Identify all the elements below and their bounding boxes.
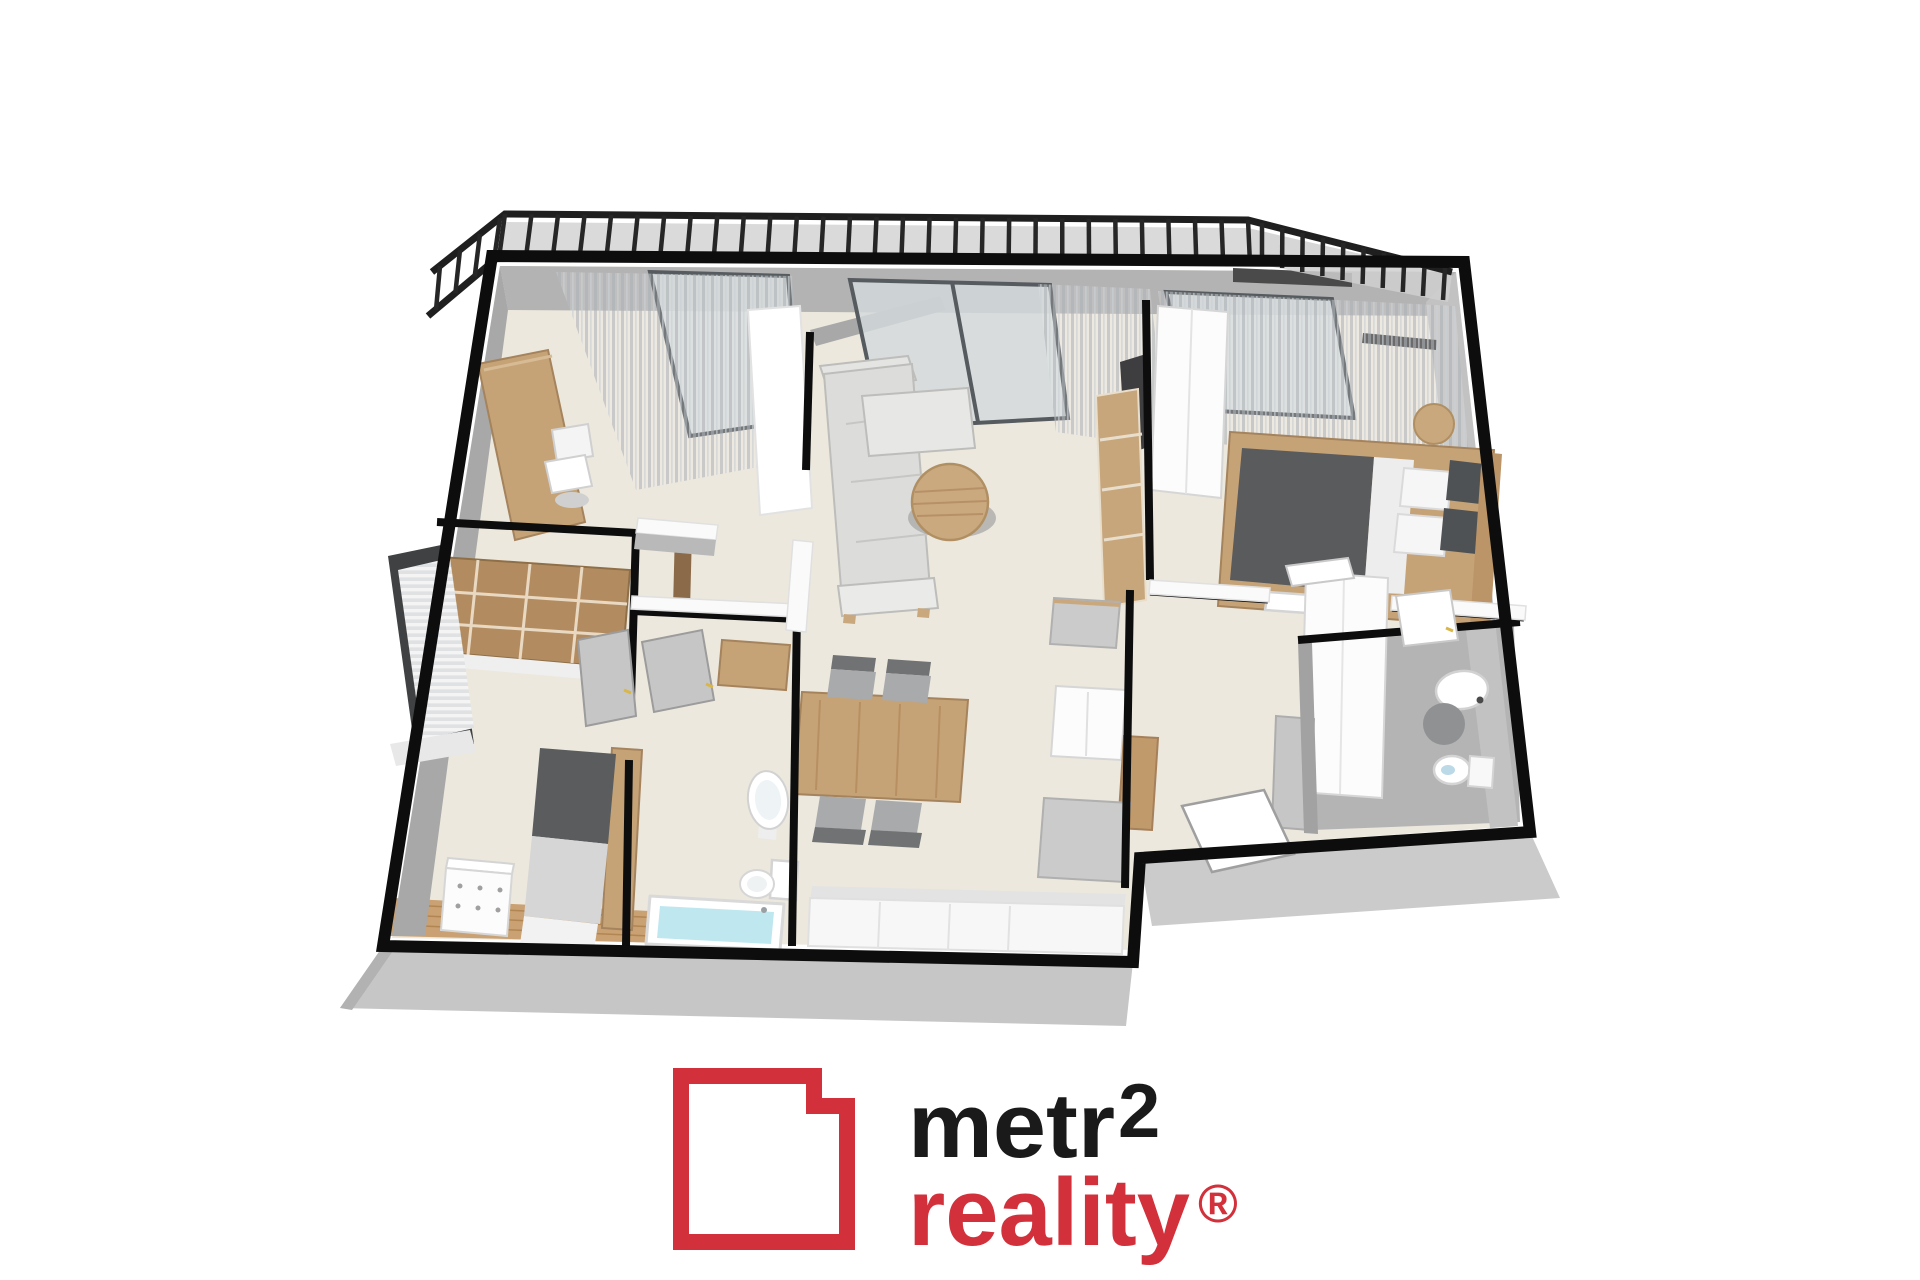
sofa-chaise (862, 388, 975, 456)
door-bathroom-second (1396, 590, 1458, 646)
logo-wordmark-line2: reality (908, 1159, 1190, 1266)
pillow (1394, 514, 1448, 556)
sink-faucet (1477, 697, 1484, 704)
bed2-duvet (532, 748, 616, 844)
bathtub-water (657, 906, 774, 944)
dresser (441, 868, 512, 936)
floorplan-page: metr 2 reality ® (0, 0, 1920, 1280)
bathtub-faucet (761, 907, 767, 913)
pillow (1400, 468, 1452, 510)
door-bedroom2 (578, 630, 636, 726)
bedside-table (1414, 404, 1454, 444)
pillow-dark (1446, 460, 1484, 504)
leaning-white-panel (748, 306, 812, 515)
railing-post (1423, 263, 1425, 296)
toilet2-tank (1468, 756, 1494, 788)
hall-wood-chest (718, 640, 790, 690)
logo-registered-mark: ® (1198, 1174, 1238, 1234)
railing-post (1443, 268, 1445, 300)
logo-square-icon (681, 1076, 847, 1242)
bed2-sheet (524, 836, 608, 924)
kitchen-lower-cabinets (1038, 798, 1130, 882)
shelf (1096, 389, 1146, 607)
logo-superscript: 2 (1118, 1069, 1160, 1154)
pillow-dark (1440, 508, 1480, 554)
shower-mat (1423, 703, 1465, 745)
brand-logo: metr 2 reality ® (681, 1069, 1238, 1266)
door-bathroom-main (642, 630, 714, 712)
floorplan-render: metr 2 reality ® (0, 0, 1920, 1280)
kitchen-long-counter (808, 898, 1124, 954)
